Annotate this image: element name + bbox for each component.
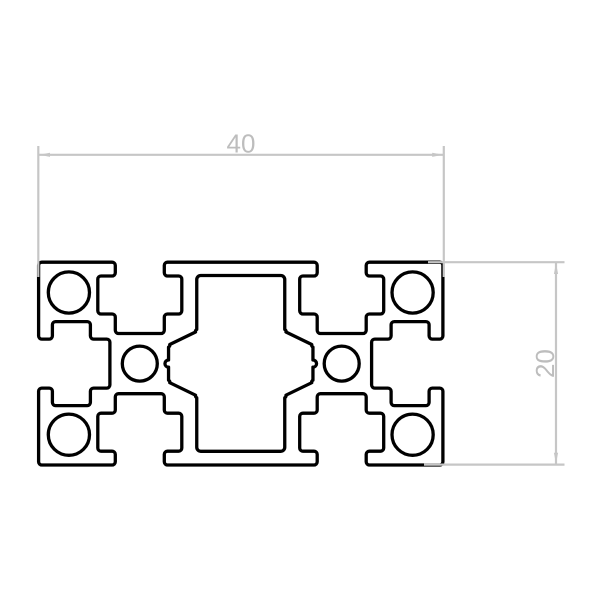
svg-text:20: 20 — [530, 349, 560, 378]
svg-text:40: 40 — [227, 129, 256, 159]
